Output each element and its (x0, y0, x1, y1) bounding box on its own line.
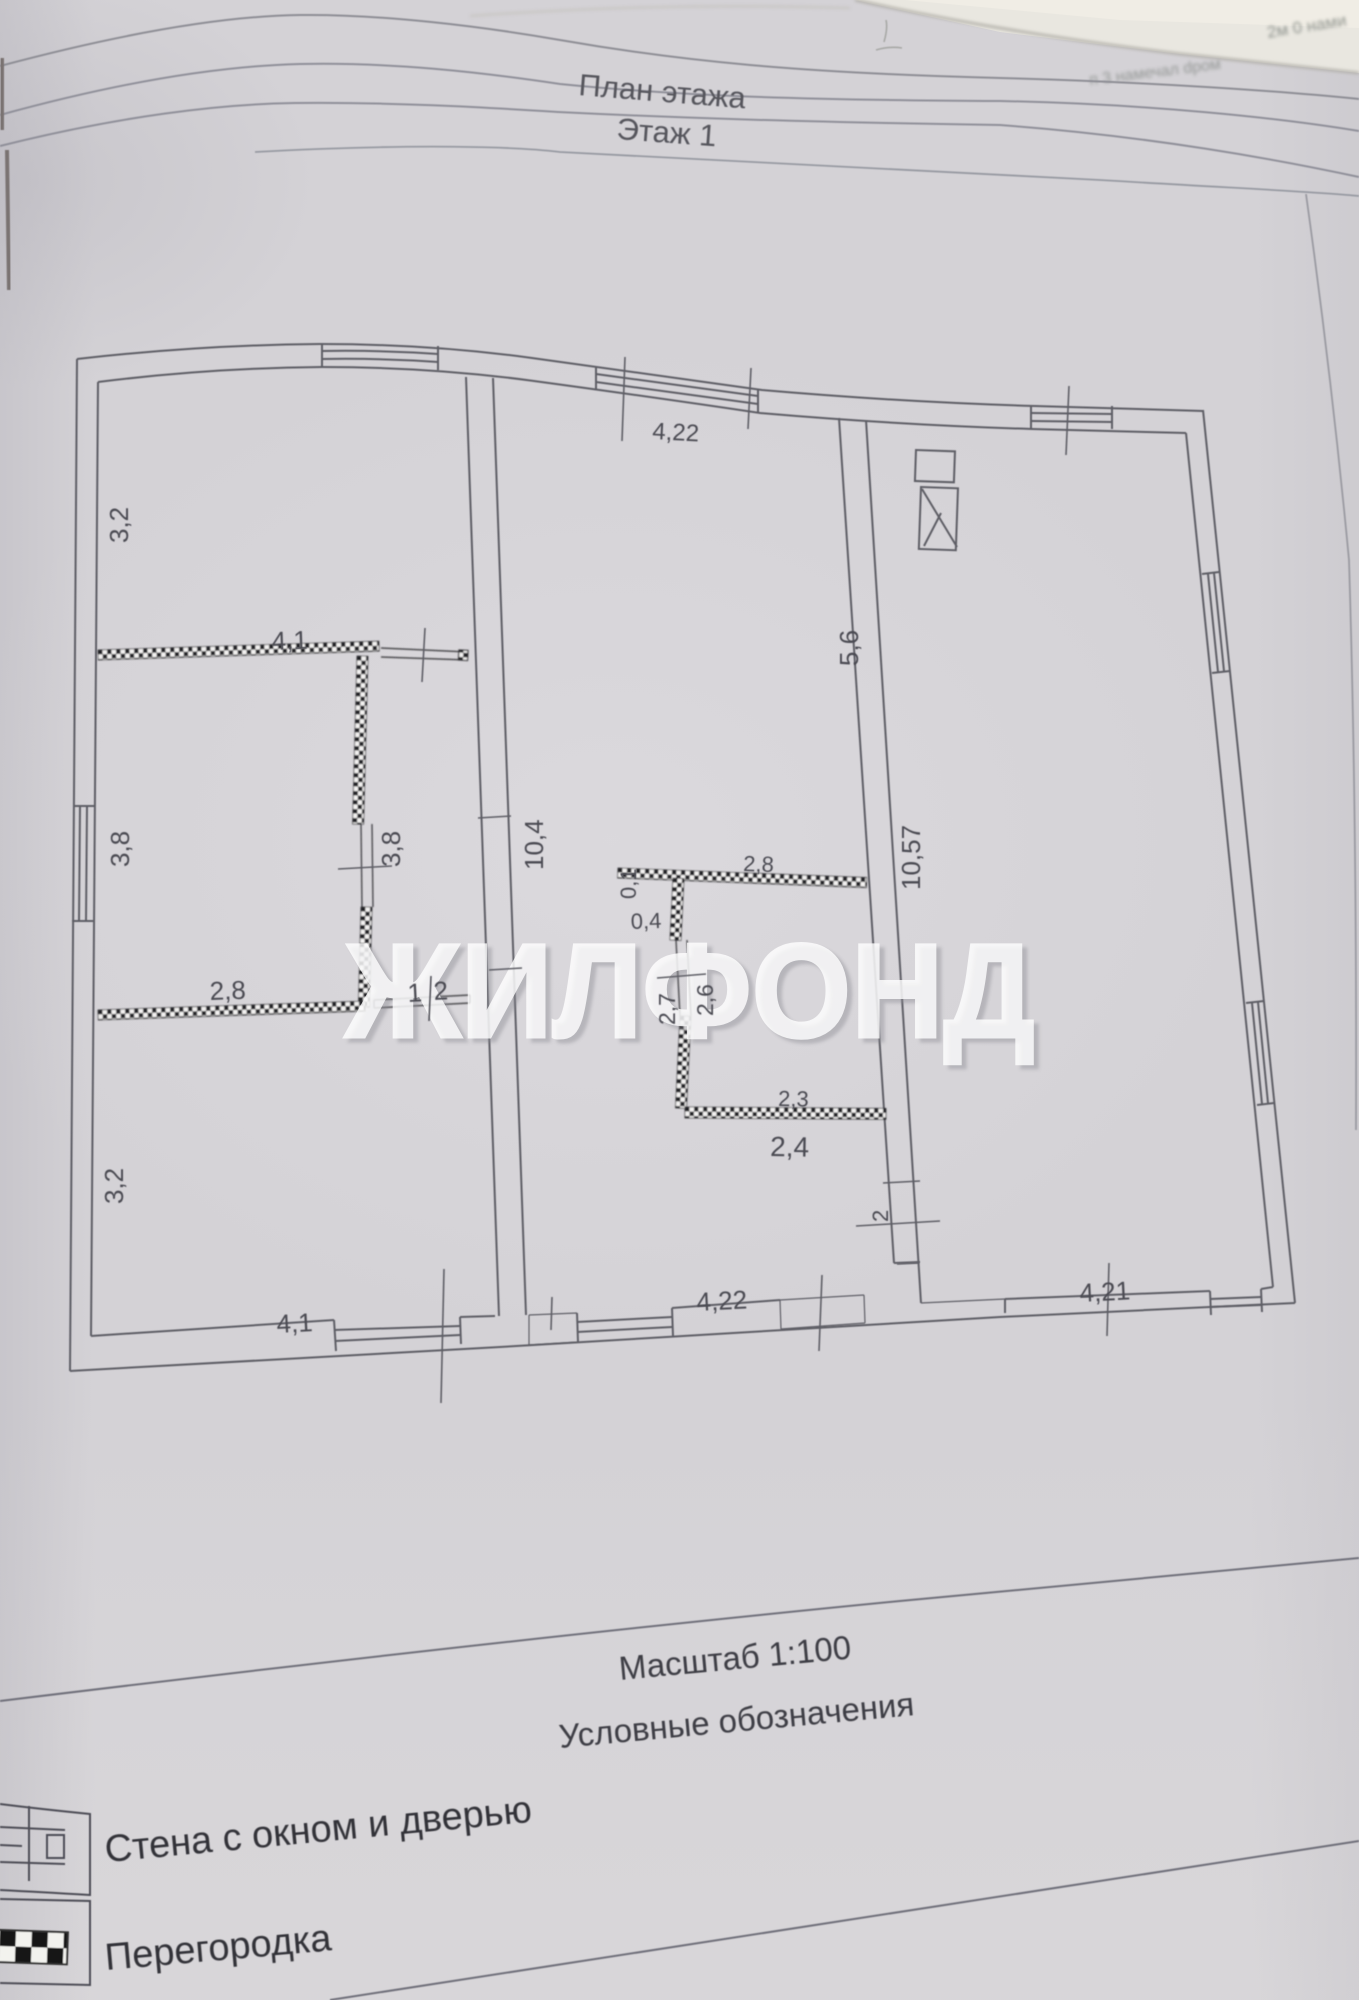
svg-text:2,7: 2,7 (654, 993, 680, 1025)
svg-text:4,1: 4,1 (276, 1307, 314, 1339)
svg-text:4,22: 4,22 (652, 418, 700, 447)
svg-text:4,21: 4,21 (1079, 1275, 1131, 1308)
svg-text:2,8: 2,8 (209, 975, 246, 1006)
svg-text:3,2: 3,2 (99, 1168, 129, 1204)
svg-text:Перегородка: Перегородка (103, 1917, 334, 1979)
svg-text:3,8: 3,8 (105, 831, 135, 867)
svg-text:10,4: 10,4 (519, 819, 549, 870)
svg-text:2,3: 2,3 (778, 1086, 809, 1112)
svg-text:2,4: 2,4 (770, 1131, 809, 1163)
svg-text:2,6: 2,6 (692, 984, 718, 1016)
svg-text:0,1: 0,1 (616, 868, 641, 899)
svg-text:Масштаб 1:100: Масштаб 1:100 (617, 1629, 852, 1687)
svg-text:Стена с окном и дверью: Стена с окном и дверью (103, 1789, 534, 1871)
svg-text:10,57: 10,57 (896, 825, 926, 890)
svg-text:5,6: 5,6 (834, 630, 864, 666)
svg-text:Условные обозначения: Условные обозначения (557, 1685, 915, 1755)
svg-text:4,22: 4,22 (696, 1284, 748, 1317)
svg-text:3,8: 3,8 (376, 831, 406, 867)
svg-text:4,1: 4,1 (271, 625, 308, 656)
svg-text:2: 2 (868, 1210, 893, 1222)
svg-text:3,2: 3,2 (104, 507, 134, 543)
svg-text:2: 2 (433, 975, 449, 1006)
svg-text:2,8: 2,8 (743, 851, 774, 877)
svg-text:1: 1 (407, 977, 423, 1008)
svg-text:0,4: 0,4 (630, 908, 661, 934)
